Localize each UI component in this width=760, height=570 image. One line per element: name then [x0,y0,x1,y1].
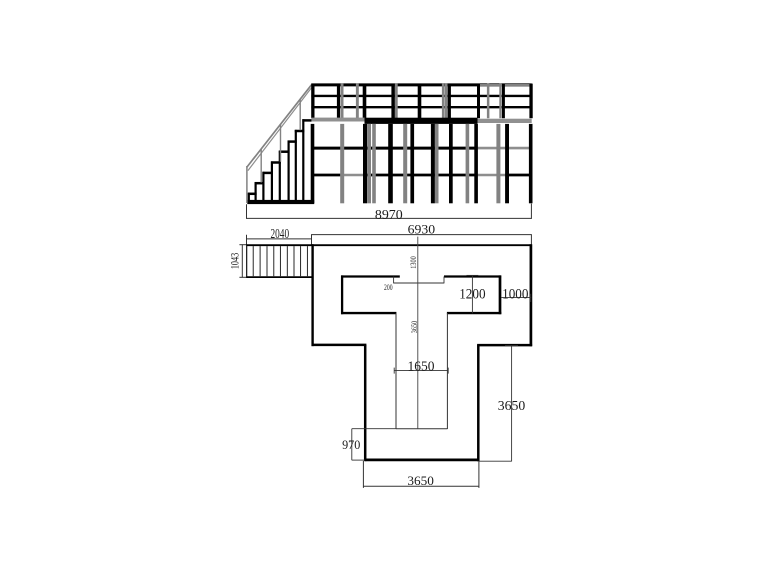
svg-text:970: 970 [342,437,360,452]
svg-text:6930: 6930 [408,223,436,237]
svg-text:3650: 3650 [407,473,434,488]
svg-text:1300: 1300 [409,256,418,269]
svg-text:1200: 1200 [459,287,485,303]
svg-text:3650: 3650 [498,398,526,413]
svg-text:1650: 1650 [408,358,435,373]
svg-text:1000: 1000 [502,287,528,303]
svg-text:3650: 3650 [410,321,419,333]
svg-text:8970: 8970 [375,208,403,223]
svg-text:200: 200 [384,282,393,292]
svg-text:1043: 1043 [230,253,242,269]
svg-text:2040: 2040 [271,227,290,242]
